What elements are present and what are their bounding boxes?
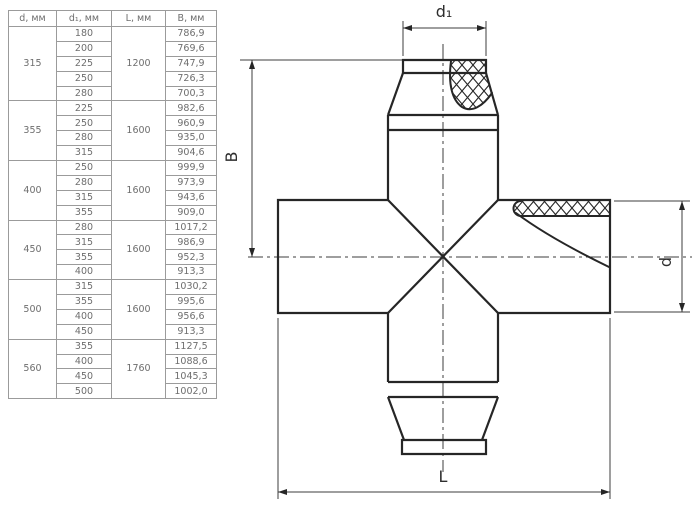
- dimension-label-B: B: [222, 152, 241, 163]
- dimension-L: L: [278, 318, 610, 499]
- dimension-d1: d₁: [403, 2, 486, 56]
- dimension-label-d1: d₁: [436, 2, 453, 21]
- cross-fitting-drawing: d₁ B d L: [0, 0, 700, 514]
- dimension-B: B: [222, 60, 402, 257]
- dimension-label-L: L: [439, 467, 448, 486]
- dimension-label-d: d: [656, 257, 675, 267]
